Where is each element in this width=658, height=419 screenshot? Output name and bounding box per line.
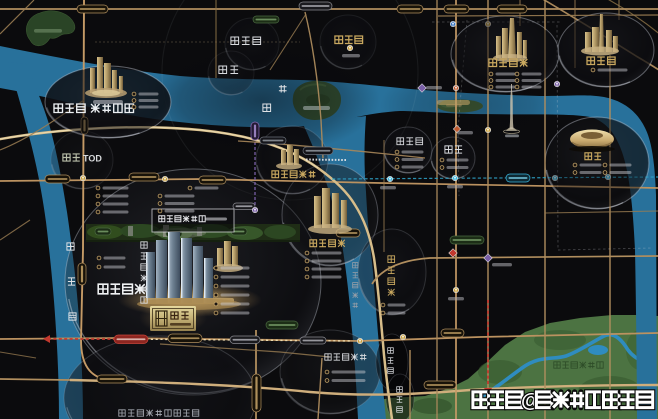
svg-text:TOD: TOD [83,154,102,164]
